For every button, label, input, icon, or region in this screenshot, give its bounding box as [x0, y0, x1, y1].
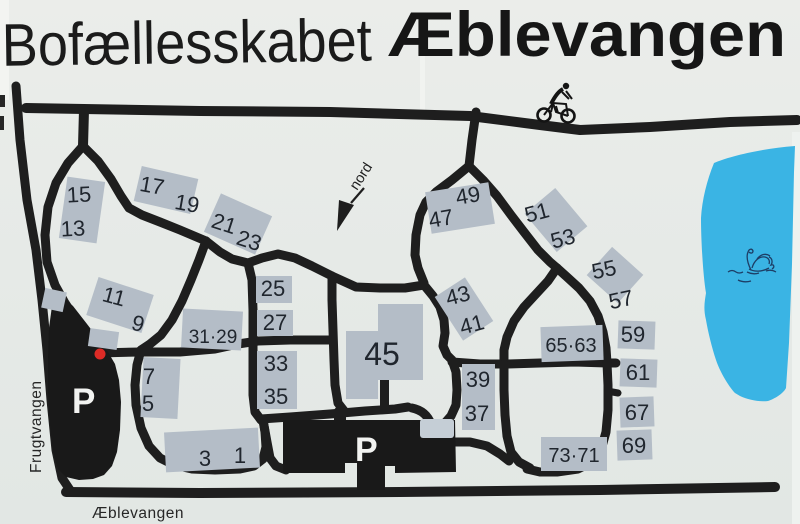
svg-text:59: 59 [621, 322, 645, 347]
svg-text:27: 27 [263, 310, 287, 335]
svg-text:49: 49 [454, 181, 482, 210]
svg-text:25: 25 [261, 276, 285, 301]
svg-text:39: 39 [466, 367, 490, 392]
svg-text:15: 15 [66, 181, 92, 207]
svg-text:P: P [355, 431, 378, 469]
svg-text:73·71: 73·71 [548, 445, 599, 467]
svg-text:7: 7 [143, 364, 155, 389]
svg-text:61: 61 [626, 360, 650, 385]
svg-text:65·63: 65·63 [545, 335, 596, 357]
svg-text:19: 19 [173, 189, 201, 218]
svg-text:33: 33 [264, 351, 288, 376]
svg-text:1: 1 [234, 443, 246, 468]
svg-text:P: P [72, 382, 95, 421]
svg-text:Bofællesskabet: Bofællesskabet [1, 7, 372, 79]
svg-text:17: 17 [138, 171, 166, 200]
svg-text:45: 45 [364, 336, 400, 372]
svg-text:57: 57 [606, 285, 635, 315]
svg-text:Frugtvangen: Frugtvangen [28, 380, 45, 473]
svg-text:37: 37 [465, 401, 489, 426]
svg-text:55: 55 [589, 255, 618, 285]
svg-text:13: 13 [60, 215, 86, 241]
svg-text:67: 67 [625, 400, 649, 425]
svg-text:5: 5 [142, 391, 154, 416]
svg-text:31·29: 31·29 [189, 327, 238, 348]
svg-text:Æblevangen: Æblevangen [92, 505, 184, 522]
svg-text:47: 47 [427, 204, 455, 233]
svg-text:69: 69 [622, 433, 646, 458]
svg-text:35: 35 [264, 384, 288, 409]
svg-text:Æblevangen: Æblevangen [388, 0, 786, 70]
svg-text:3: 3 [199, 446, 211, 471]
